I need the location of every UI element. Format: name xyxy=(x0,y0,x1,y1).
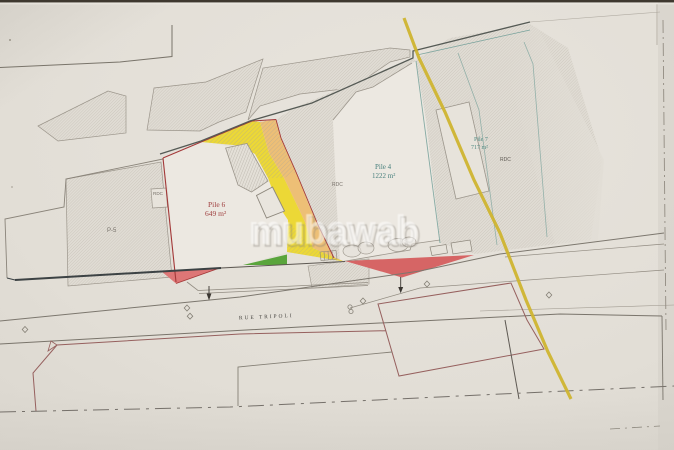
svg-text:RDC: RDC xyxy=(332,182,343,188)
svg-text:RDC: RDC xyxy=(153,191,164,196)
svg-text:Pile 7: Pile 7 xyxy=(474,137,488,143)
svg-text:649 m²: 649 m² xyxy=(205,209,227,218)
svg-text:P-5: P-5 xyxy=(107,228,117,234)
svg-text:mubawab: mubawab xyxy=(249,209,418,253)
svg-text:1222 m²: 1222 m² xyxy=(372,172,395,180)
svg-text:RDC: RDC xyxy=(500,157,511,163)
svg-text:717 m²: 717 m² xyxy=(471,145,488,151)
svg-text:Pile 4: Pile 4 xyxy=(375,163,392,171)
svg-text:Pile 6: Pile 6 xyxy=(208,200,226,209)
